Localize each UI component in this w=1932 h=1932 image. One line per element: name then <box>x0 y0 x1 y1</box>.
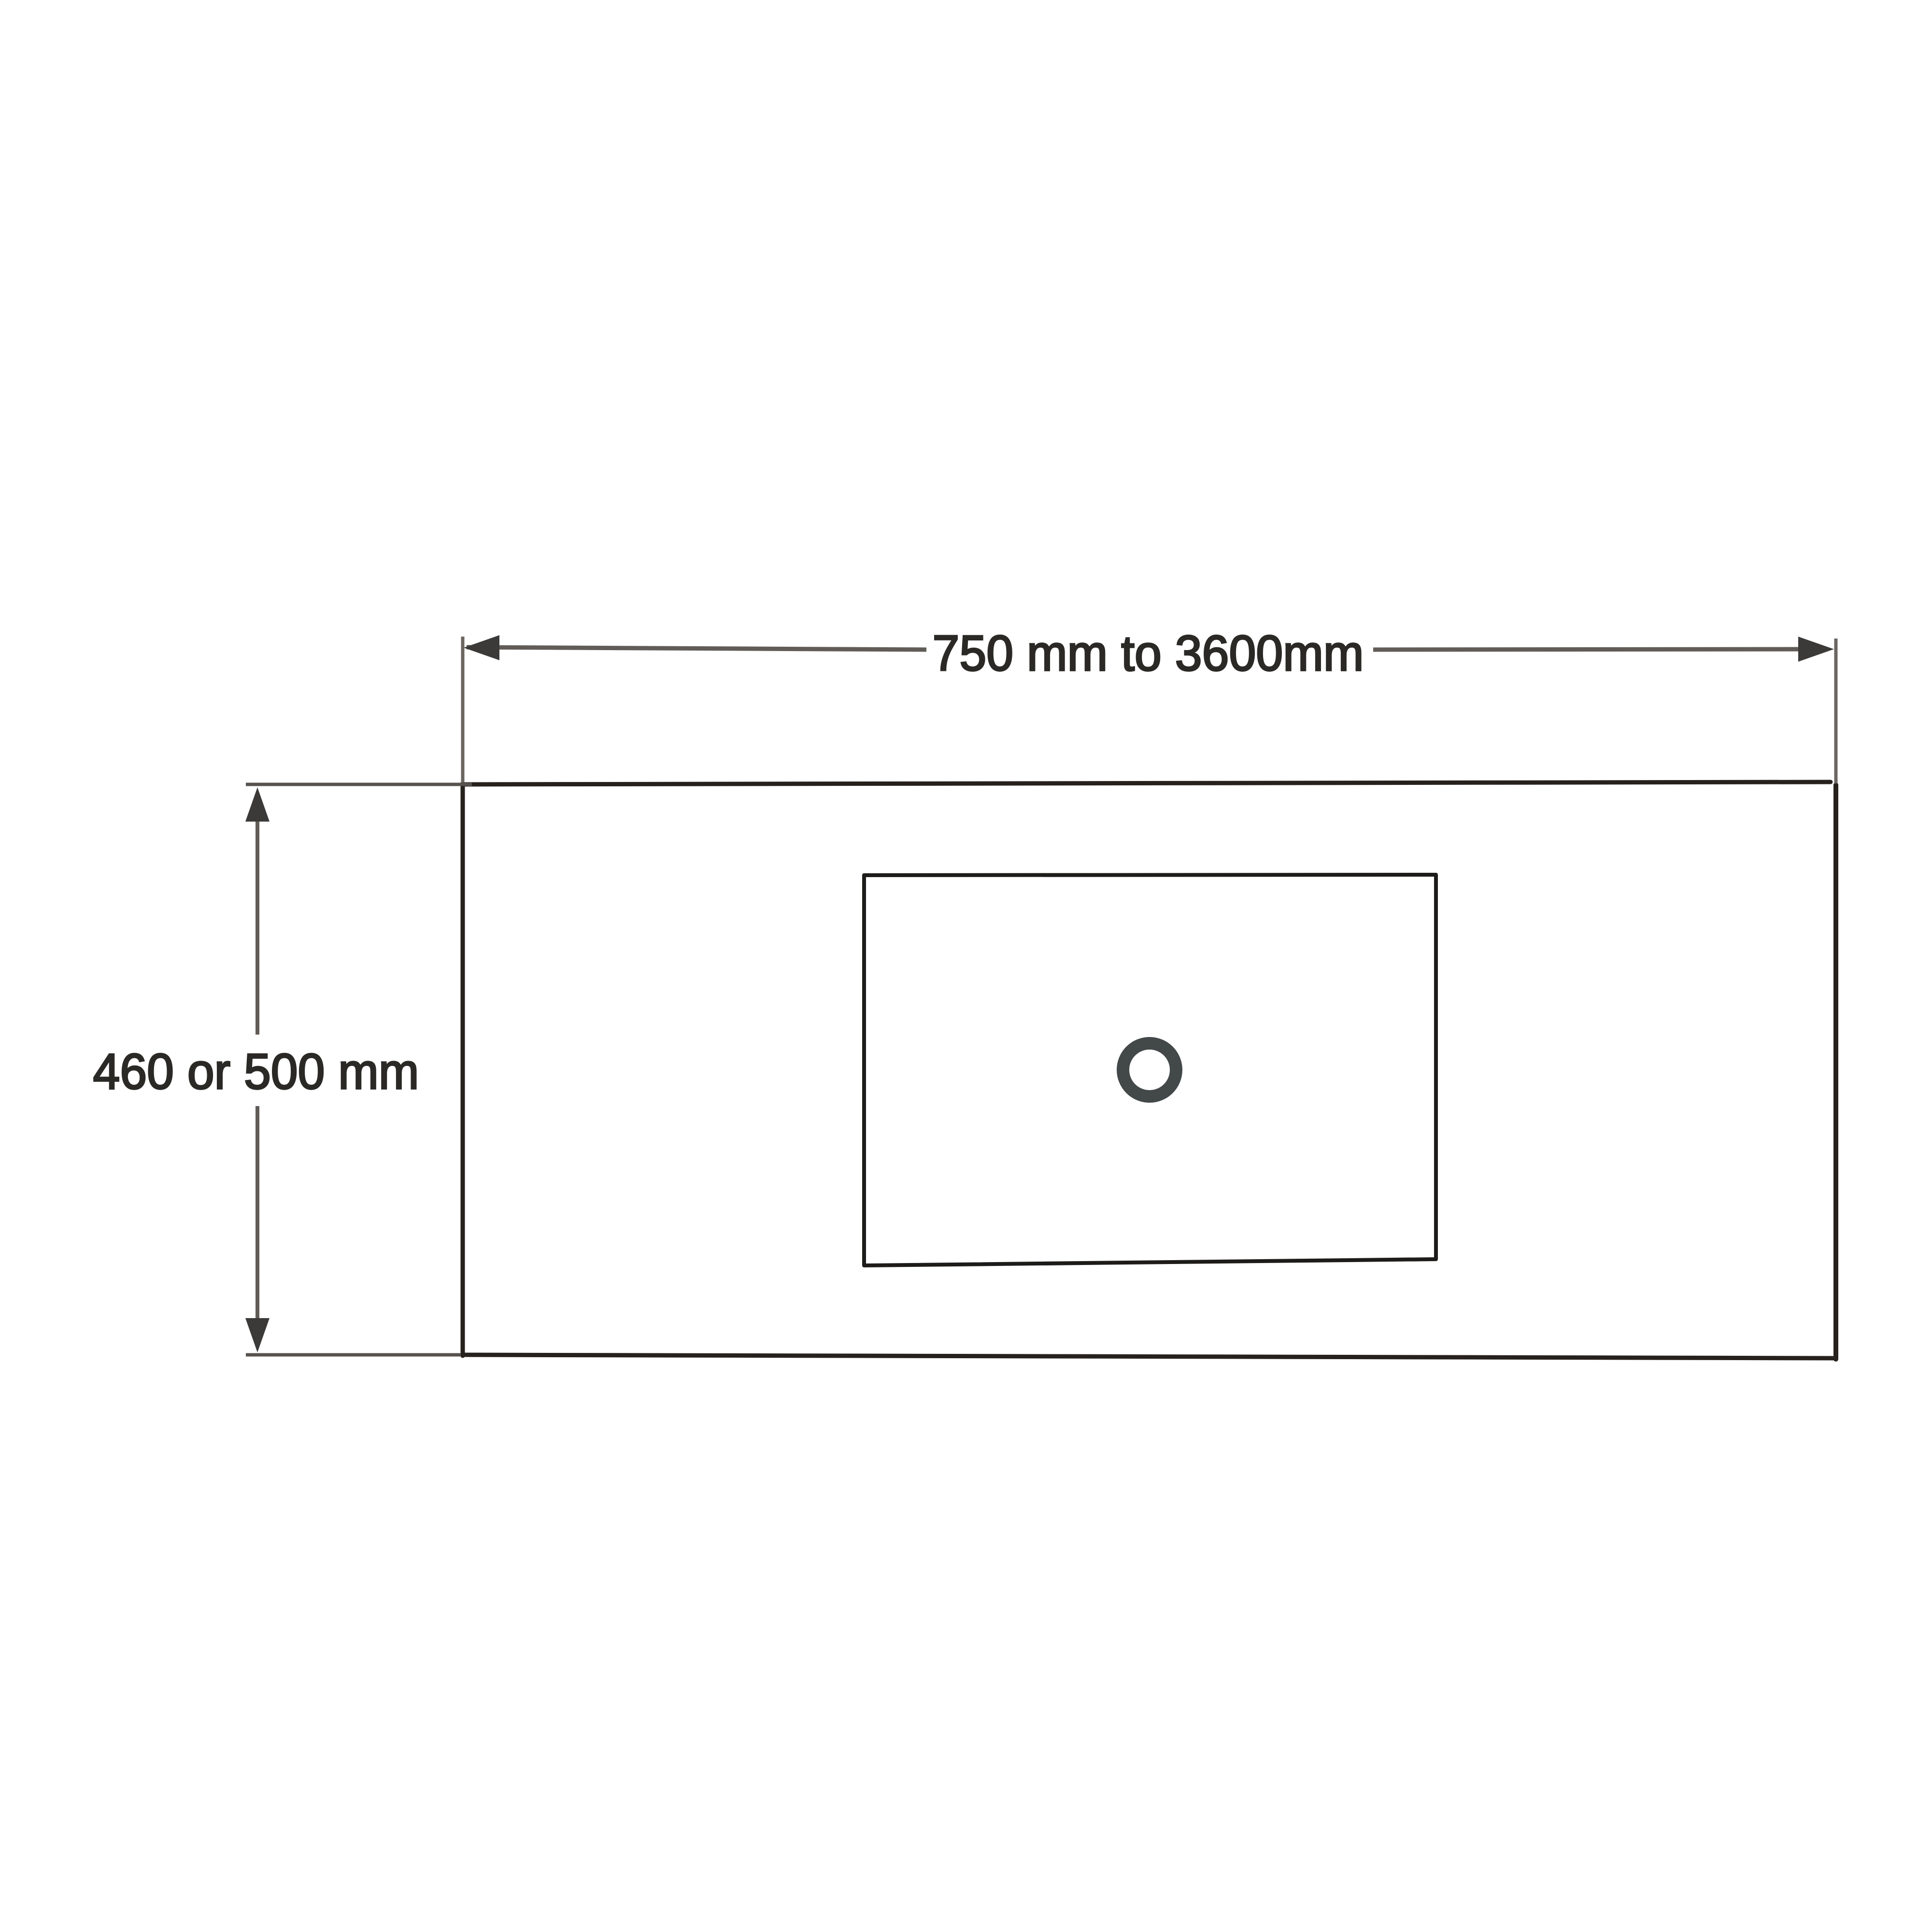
svg-text:460 or 500 mm: 460 or 500 mm <box>93 1044 419 1100</box>
svg-text:750 mm to 3600mm: 750 mm to 3600mm <box>933 625 1364 682</box>
